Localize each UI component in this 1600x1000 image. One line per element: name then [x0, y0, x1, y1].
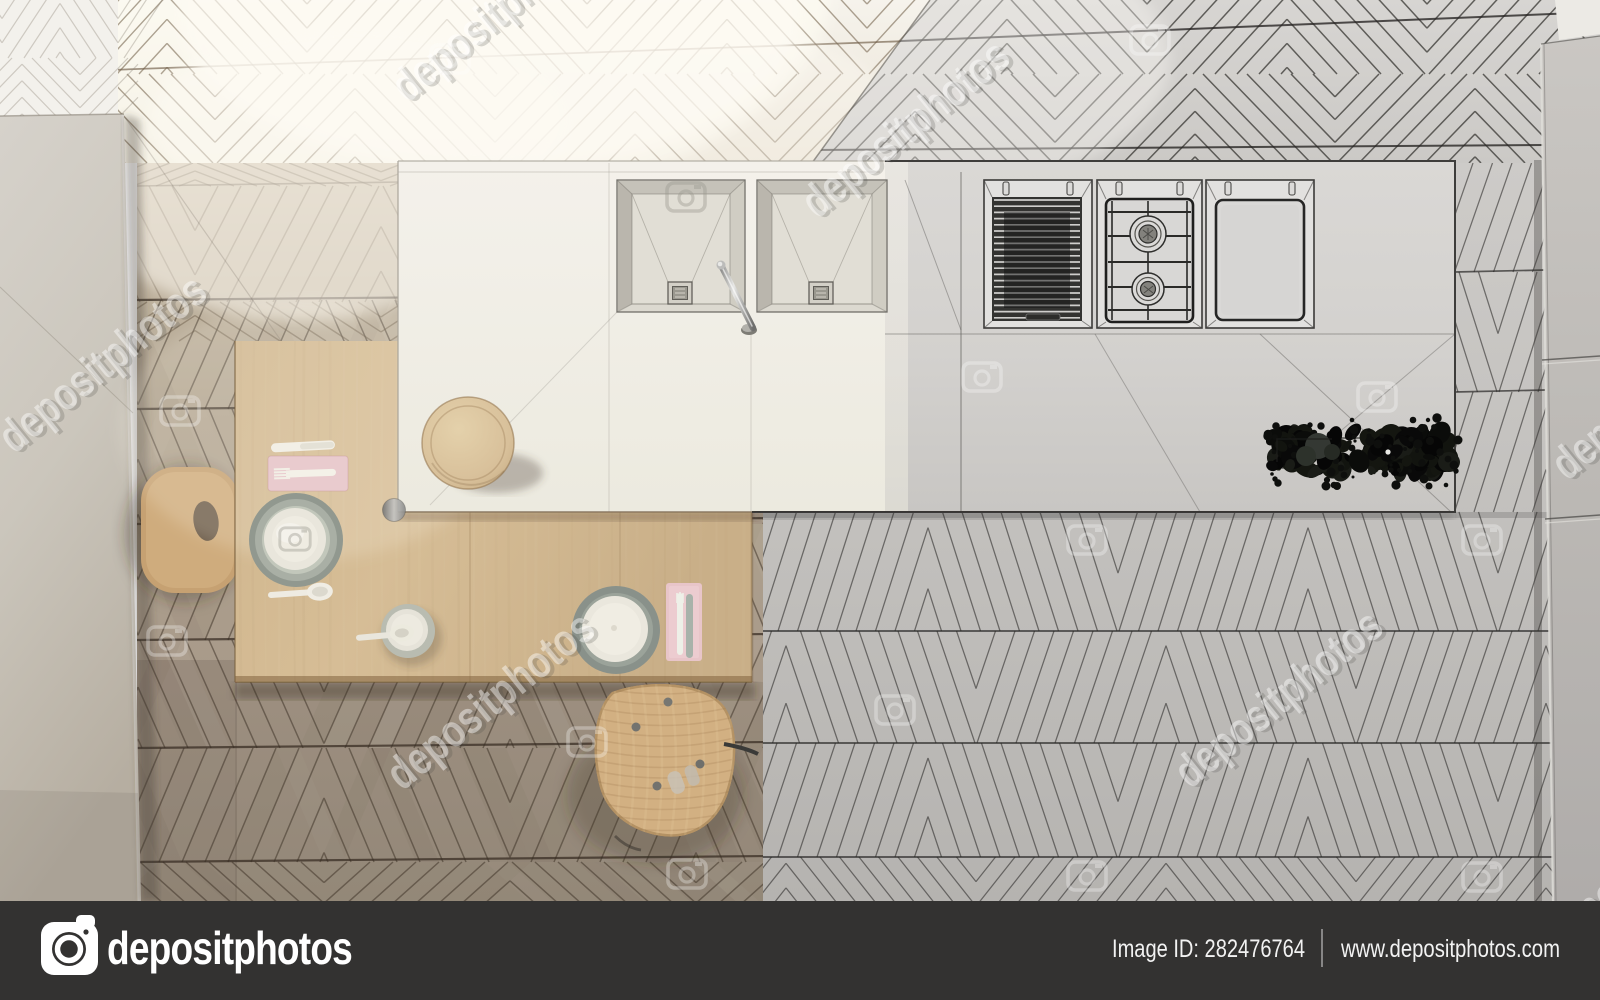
svg-text:depositphotos: depositphotos: [107, 922, 352, 974]
svg-text:Image ID: 282476764: Image ID: 282476764: [1112, 935, 1305, 963]
svg-text:www.depositphotos.com: www.depositphotos.com: [1340, 935, 1560, 963]
